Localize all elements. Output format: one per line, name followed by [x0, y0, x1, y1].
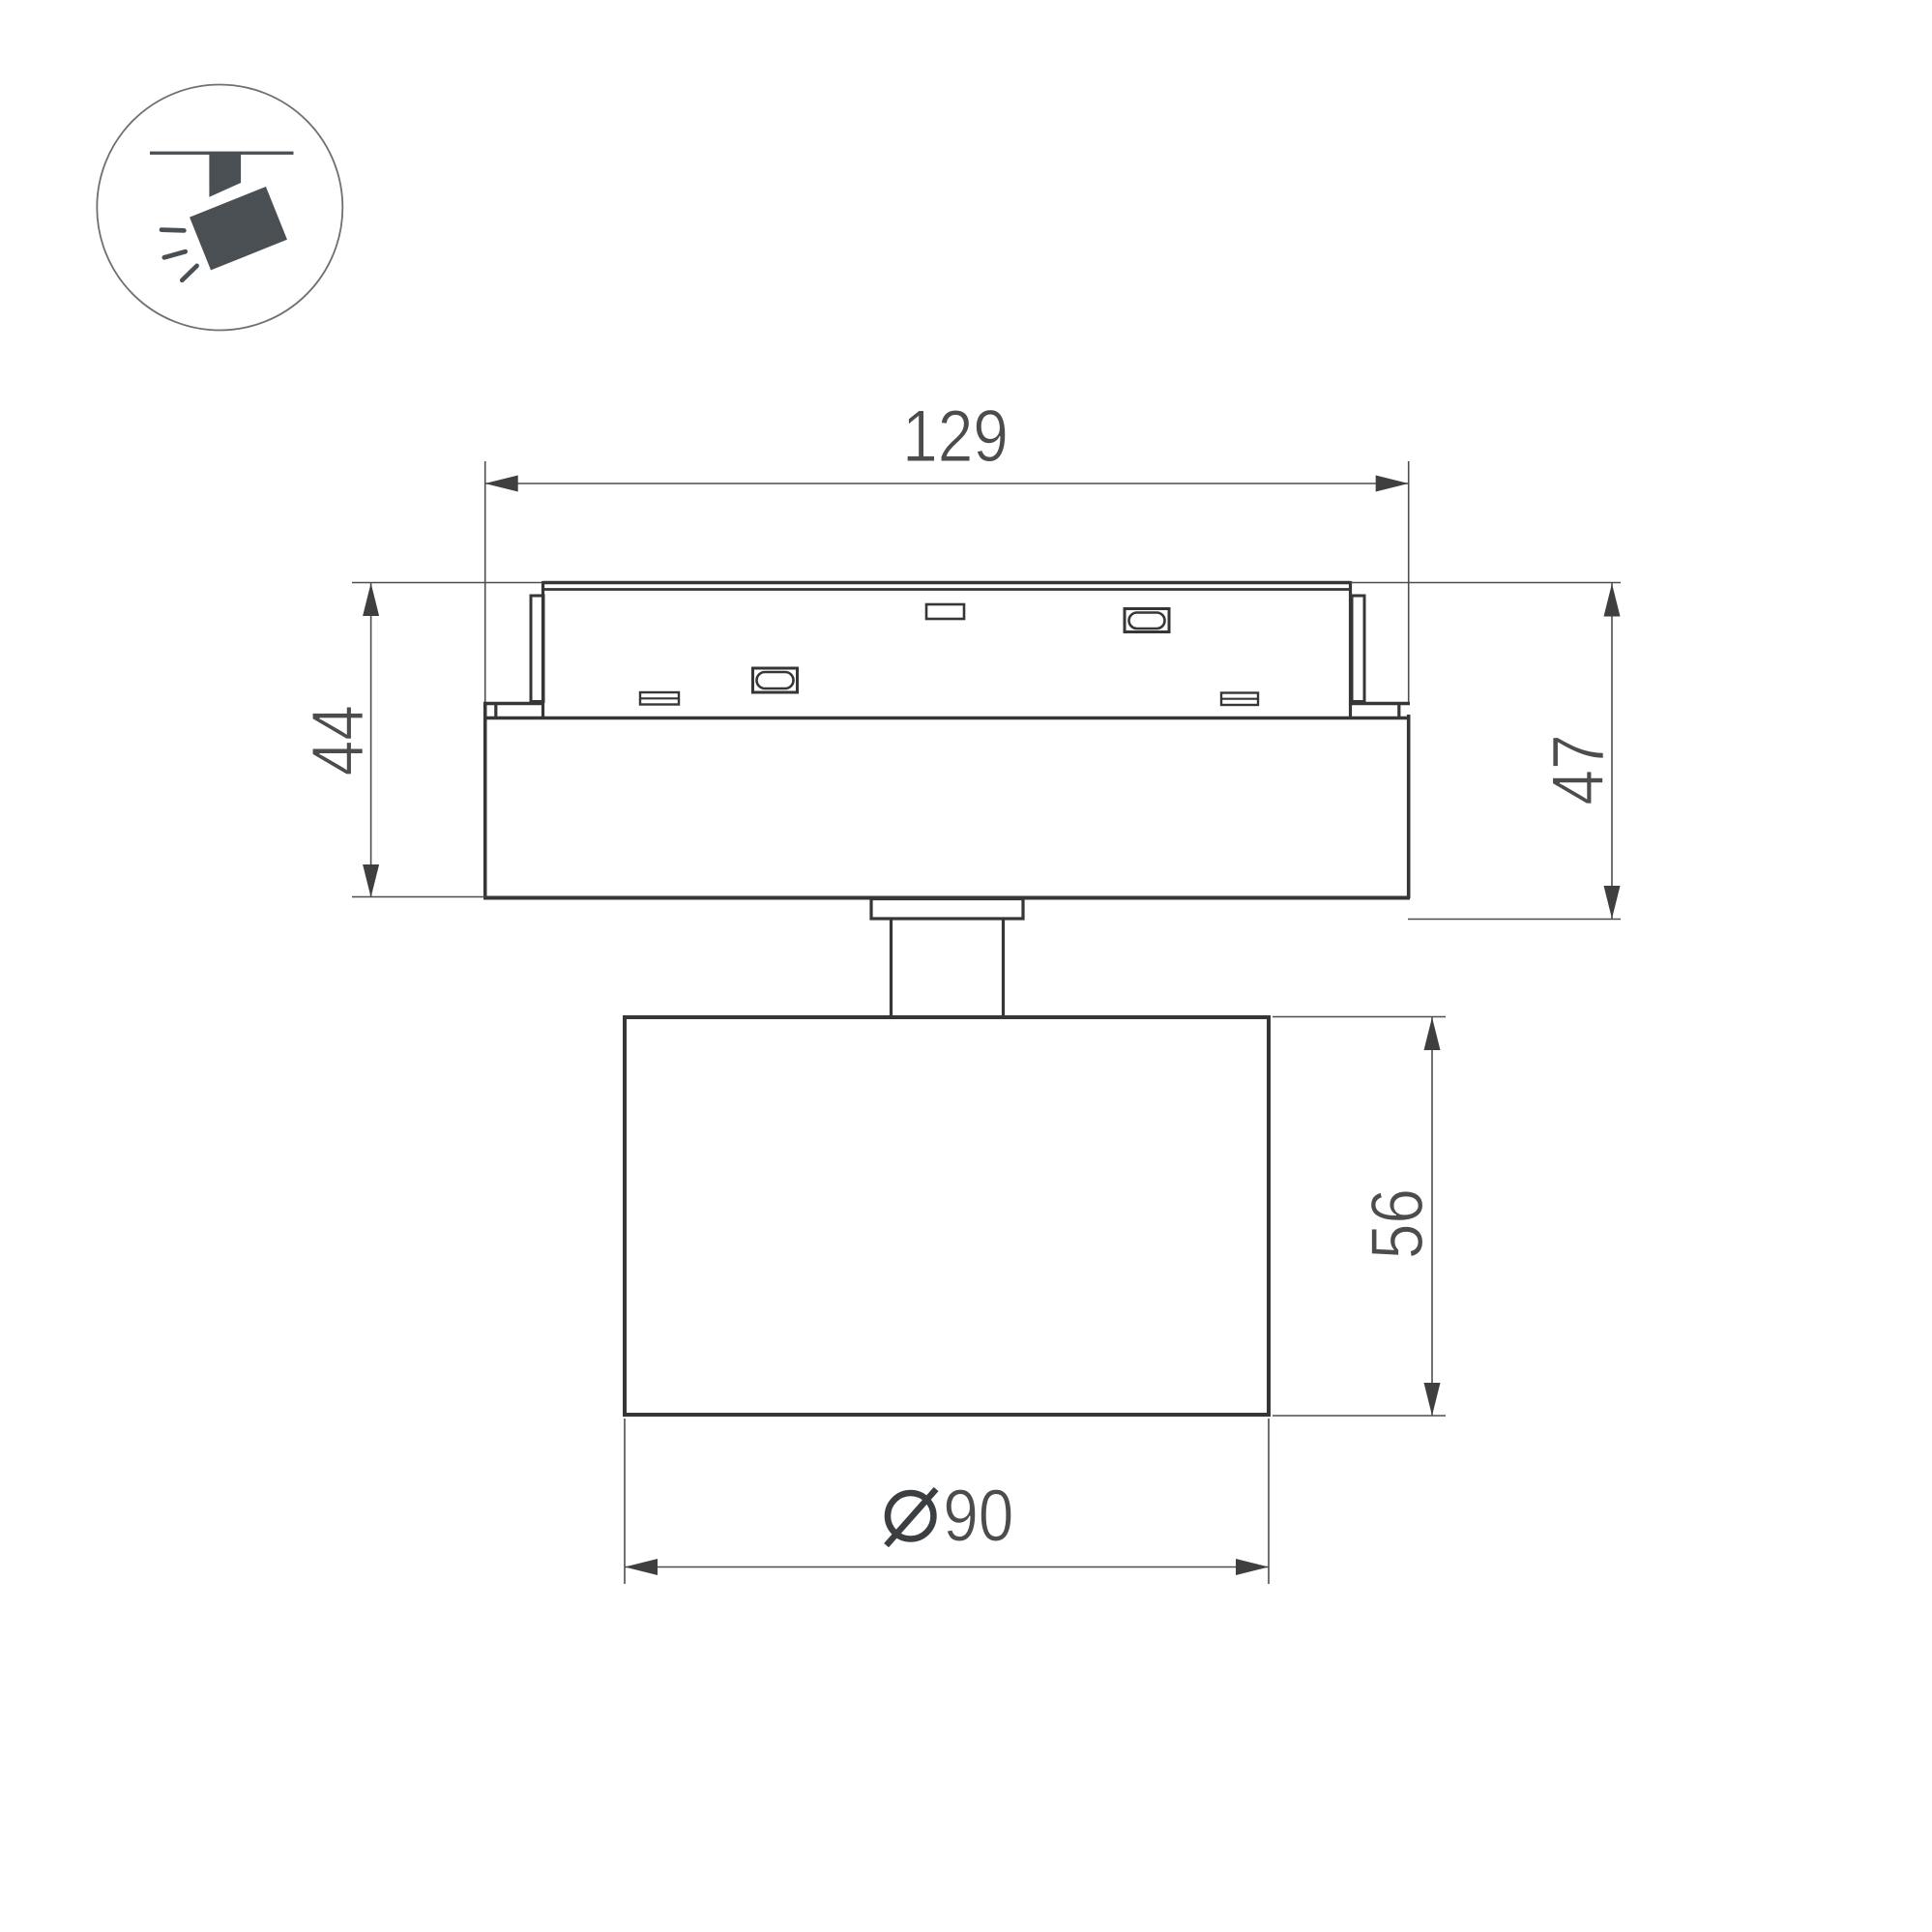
- svg-text:47: 47: [1537, 734, 1620, 805]
- svg-text:56: 56: [1356, 1188, 1439, 1259]
- svg-text:90: 90: [943, 1475, 1013, 1558]
- svg-text:129: 129: [902, 395, 1009, 478]
- svg-text:44: 44: [297, 705, 380, 776]
